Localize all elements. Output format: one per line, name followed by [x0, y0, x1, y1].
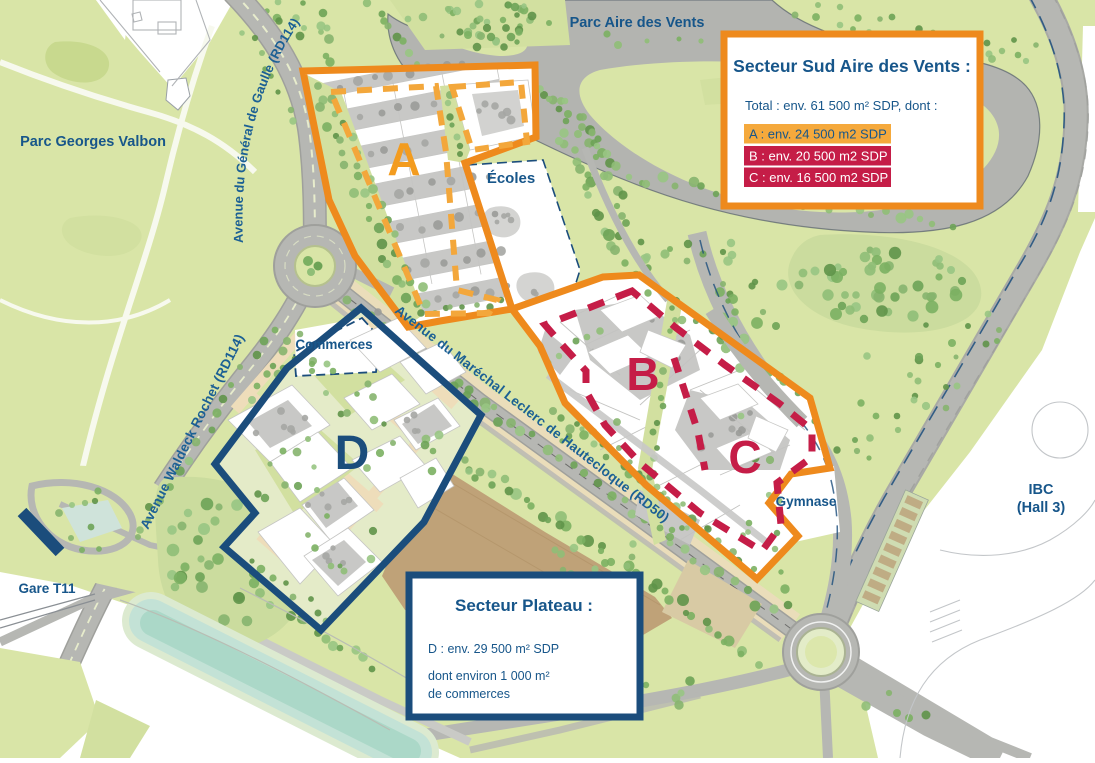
- svg-text:Parc Georges Valbon: Parc Georges Valbon: [20, 134, 166, 150]
- svg-text:D : env. 29 500 m² SDP: D : env. 29 500 m² SDP: [428, 642, 559, 656]
- svg-text:B: B: [626, 348, 659, 400]
- svg-text:A : env. 24 500 m2 SDP: A : env. 24 500 m2 SDP: [749, 127, 887, 142]
- svg-text:Commerces: Commerces: [295, 337, 372, 352]
- svg-text:Parc Aire des Vents: Parc Aire des Vents: [570, 15, 705, 31]
- svg-text:Gymnase: Gymnase: [776, 494, 837, 509]
- svg-text:C: C: [728, 431, 761, 483]
- svg-text:Écoles: Écoles: [487, 170, 535, 187]
- svg-text:Total : env. 61 500 m² SDP, do: Total : env. 61 500 m² SDP, dont :: [745, 98, 937, 113]
- svg-text:D: D: [335, 427, 370, 480]
- svg-text:dont environ 1 000 m²: dont environ 1 000 m²: [428, 669, 550, 683]
- svg-text:IBC: IBC: [1029, 482, 1055, 498]
- svg-text:Secteur Plateau :: Secteur Plateau :: [455, 596, 593, 615]
- svg-text:Secteur Sud Aire des Vents :: Secteur Sud Aire des Vents :: [733, 56, 971, 76]
- svg-text:Gare T11: Gare T11: [18, 581, 76, 596]
- svg-text:B : env. 20 500 m2 SDP: B : env. 20 500 m2 SDP: [749, 149, 888, 164]
- svg-text:A: A: [387, 133, 420, 185]
- svg-text:(Hall 3): (Hall 3): [1017, 500, 1066, 516]
- svg-text:C : env. 16 500 m2 SDP: C : env. 16 500 m2 SDP: [749, 170, 888, 185]
- svg-text:de commerces: de commerces: [428, 687, 510, 701]
